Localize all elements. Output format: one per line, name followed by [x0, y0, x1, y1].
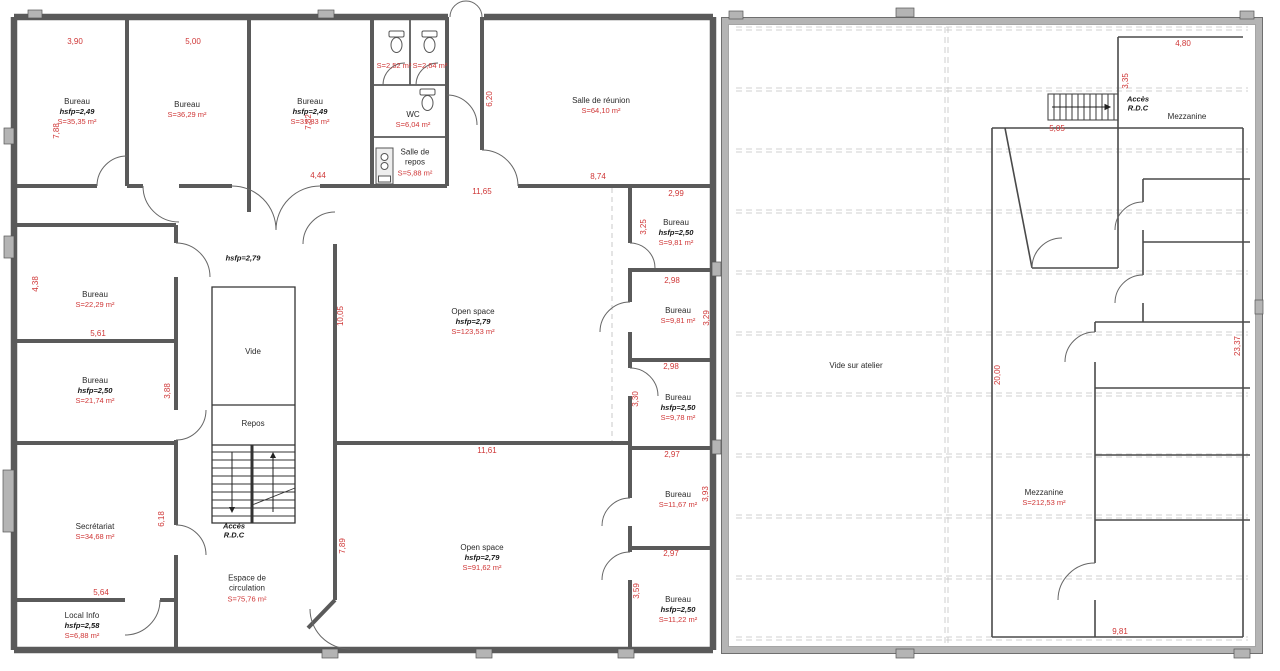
- kitchenette-icon: [376, 148, 393, 184]
- dimension-label: 4,44: [310, 172, 326, 180]
- ceiling-height-annotation: hsfp=2,79: [226, 253, 261, 262]
- dimension-label: 5,00: [185, 38, 201, 46]
- access-rdc-label-right: Accès R.D.C: [1127, 95, 1149, 114]
- dimension-label: 4,80: [1175, 40, 1191, 48]
- dimension-label: 11,61: [477, 447, 496, 455]
- room-label-bureau-5: Bureau hsfp=2,50 S=21,74 m²: [76, 376, 115, 406]
- room-label-bureau-2: Bureau S=36,29 m²: [168, 100, 207, 120]
- room-label-bureau-4: Bureau S=22,29 m²: [76, 290, 115, 310]
- dimension-label: 2,97: [663, 550, 679, 558]
- dimension-label: 3,90: [67, 38, 83, 46]
- room-label-open-space-1: Open space hsfp=2,79 S=123,53 m²: [451, 307, 494, 337]
- dimension-label: 4,38: [32, 276, 40, 292]
- room-label-espace-circulation: Espace de circulation S=75,76 m²: [219, 574, 275, 605]
- room-label-wc-stall-2: S=2,64 m²: [413, 61, 448, 71]
- dimension-label: 6,18: [158, 511, 166, 527]
- mezzanine-stairs: [1048, 94, 1118, 120]
- dimension-label: 11,65: [472, 188, 491, 196]
- room-label-open-space-2: Open space hsfp=2,79 S=91,62 m²: [460, 543, 503, 573]
- room-label-repos: Repos: [241, 419, 264, 429]
- dimension-label: 2,98: [663, 363, 679, 371]
- room-label-bureau-9: Bureau S=11,67 m²: [659, 490, 697, 510]
- dimension-label: 20,00: [994, 365, 1002, 385]
- dimension-label: 3,35: [1122, 73, 1130, 89]
- dimension-label: 7,88: [53, 123, 61, 139]
- floor-plan: Bureau hsfp=2,49 S=35,35 m² Bureau S=36,…: [0, 0, 1280, 671]
- room-label-local-info: Local Info hsfp=2,58 S=6,88 m²: [65, 611, 100, 641]
- access-rdc-label-left: Accès R.D.C: [223, 522, 245, 541]
- dimension-label: 3,25: [640, 219, 648, 235]
- dimension-label: 7,89: [339, 538, 347, 554]
- room-label-vide-sur-atelier: Vide sur atelier: [829, 361, 882, 371]
- dimension-label: 2,99: [668, 190, 684, 198]
- dimension-label: 8,74: [590, 173, 606, 181]
- room-label-mezzanine-top: Mezzanine: [1168, 112, 1207, 122]
- room-label-secretariat: Secrétariat S=34,68 m²: [76, 522, 115, 542]
- room-label-wc-stall-1: S=2,52 m²: [377, 61, 412, 71]
- dimension-label: 3,93: [702, 486, 710, 502]
- dimension-label: 10,05: [337, 306, 345, 326]
- dimension-label: 3,29: [703, 310, 711, 326]
- dimension-label: 3,30: [632, 391, 640, 407]
- dimension-label: 7,82: [305, 114, 313, 130]
- dimension-label: 6,20: [486, 91, 494, 107]
- stair-core: [212, 287, 295, 523]
- dimension-label: 5,64: [93, 589, 109, 597]
- room-label-bureau-8: Bureau hsfp=2,50 S=9,78 m²: [661, 393, 696, 423]
- dimension-label: 2,97: [664, 451, 680, 459]
- room-label-salle-de-reunion: Salle de réunion S=64,10 m²: [572, 96, 630, 116]
- dimension-label: 2,98: [664, 277, 680, 285]
- room-label-bureau-1: Bureau hsfp=2,49 S=35,35 m²: [58, 97, 97, 127]
- dimension-label: 3,59: [633, 583, 641, 599]
- room-label-bureau-7: Bureau S=9,81 m²: [661, 306, 696, 326]
- dimension-label: 3,88: [164, 383, 172, 399]
- room-label-wc: WC S=6,04 m²: [396, 110, 431, 130]
- room-label-salle-de-repos: Salle de repos S=5,88 m²: [394, 148, 436, 179]
- dimension-label: 5,61: [90, 330, 106, 338]
- room-label-mezzanine: Mezzanine S=212,53 m²: [1022, 488, 1065, 508]
- room-label-bureau-6: Bureau hsfp=2,50 S=9,81 m²: [659, 218, 694, 248]
- room-label-vide: Vide: [245, 347, 261, 357]
- room-label-bureau-10: Bureau hsfp=2,50 S=11,22 m²: [659, 595, 697, 625]
- dimension-label: 23,37: [1234, 336, 1242, 356]
- dimension-label: 9,81: [1112, 628, 1128, 636]
- dimension-label: 5,05: [1049, 125, 1065, 133]
- mezzanine-walls: [992, 37, 1250, 637]
- mezzanine-doors: [1032, 202, 1143, 600]
